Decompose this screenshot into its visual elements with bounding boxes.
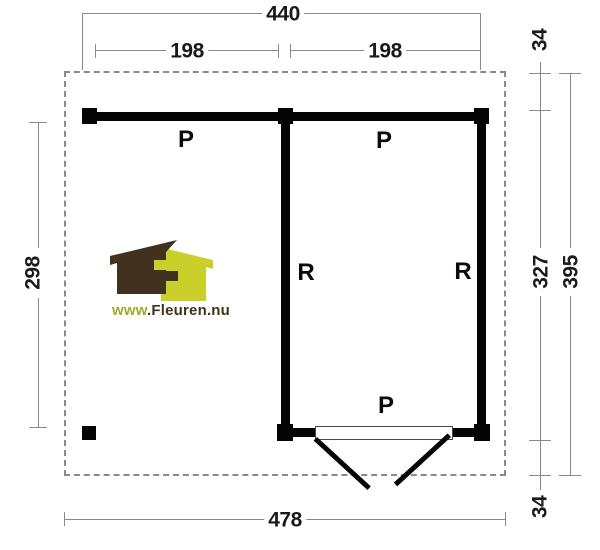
- dim-label-34-top: 34: [529, 25, 552, 55]
- label-wall-left: R: [297, 261, 314, 285]
- dim-line-395-a: [570, 73, 571, 248]
- dim-label-395: 395: [560, 251, 583, 293]
- wall-bottom-stub-left: [293, 428, 317, 437]
- dim-ext-440-left: [82, 13, 83, 70]
- dim-label-198-right: 198: [364, 40, 406, 63]
- logo-url-domain: .Fleuren.nu: [147, 302, 230, 319]
- dim-tick: [559, 73, 581, 74]
- dim-tick: [529, 73, 551, 74]
- dim-label-298: 298: [22, 252, 45, 294]
- dim-ext-440-right: [480, 13, 481, 70]
- dim-label-198-left: 198: [166, 40, 208, 63]
- post-bottom-right-room: [474, 424, 490, 441]
- dim-line-395-b: [570, 296, 571, 475]
- label-wall-right: R: [454, 260, 471, 284]
- door-frame: [315, 426, 453, 440]
- dim-tick: [278, 44, 279, 58]
- dim-tick: [529, 110, 551, 111]
- dim-tick: [29, 122, 47, 123]
- dim-tick: [64, 512, 65, 526]
- wall-center-vertical: [281, 112, 290, 433]
- logo-puzzle-tab-lime: [154, 260, 166, 270]
- dim-tick: [480, 44, 481, 58]
- dim-tick: [95, 44, 96, 58]
- floor-plan-drawing: 440 198 198 34 327 34 395 298 478 P: [0, 0, 600, 550]
- dim-label-34-bottom: 34: [529, 492, 552, 522]
- post-top-left: [82, 108, 97, 124]
- fleuren-logo: www.Fleuren.nu: [104, 236, 238, 320]
- logo-url: www.Fleuren.nu: [104, 303, 238, 318]
- label-area-left: P: [178, 128, 194, 152]
- dim-line-right-inner-b: [540, 296, 541, 490]
- dim-tick: [529, 475, 551, 476]
- dim-tick: [29, 427, 47, 428]
- dim-tick: [529, 440, 551, 441]
- dim-line-298-b: [38, 298, 39, 427]
- dim-label-478: 478: [264, 509, 306, 532]
- fleuren-logo-houses: [104, 236, 236, 304]
- dim-tick: [290, 44, 291, 58]
- dim-label-440: 440: [262, 3, 304, 26]
- label-area-door: P: [378, 394, 394, 418]
- post-bottom-left-room: [277, 424, 293, 441]
- wall-bottom-stub-right: [450, 428, 475, 437]
- wall-right-vertical: [477, 112, 486, 433]
- logo-puzzle-tab-brown: [164, 271, 178, 281]
- label-area-room: P: [376, 129, 392, 153]
- dim-line-298-a: [38, 122, 39, 248]
- dim-line-right-inner-a: [540, 62, 541, 248]
- dim-label-327: 327: [530, 251, 553, 293]
- logo-url-www: www: [112, 302, 147, 319]
- dim-tick: [505, 512, 506, 526]
- post-freestanding-left: [82, 426, 96, 440]
- dim-tick: [559, 475, 581, 476]
